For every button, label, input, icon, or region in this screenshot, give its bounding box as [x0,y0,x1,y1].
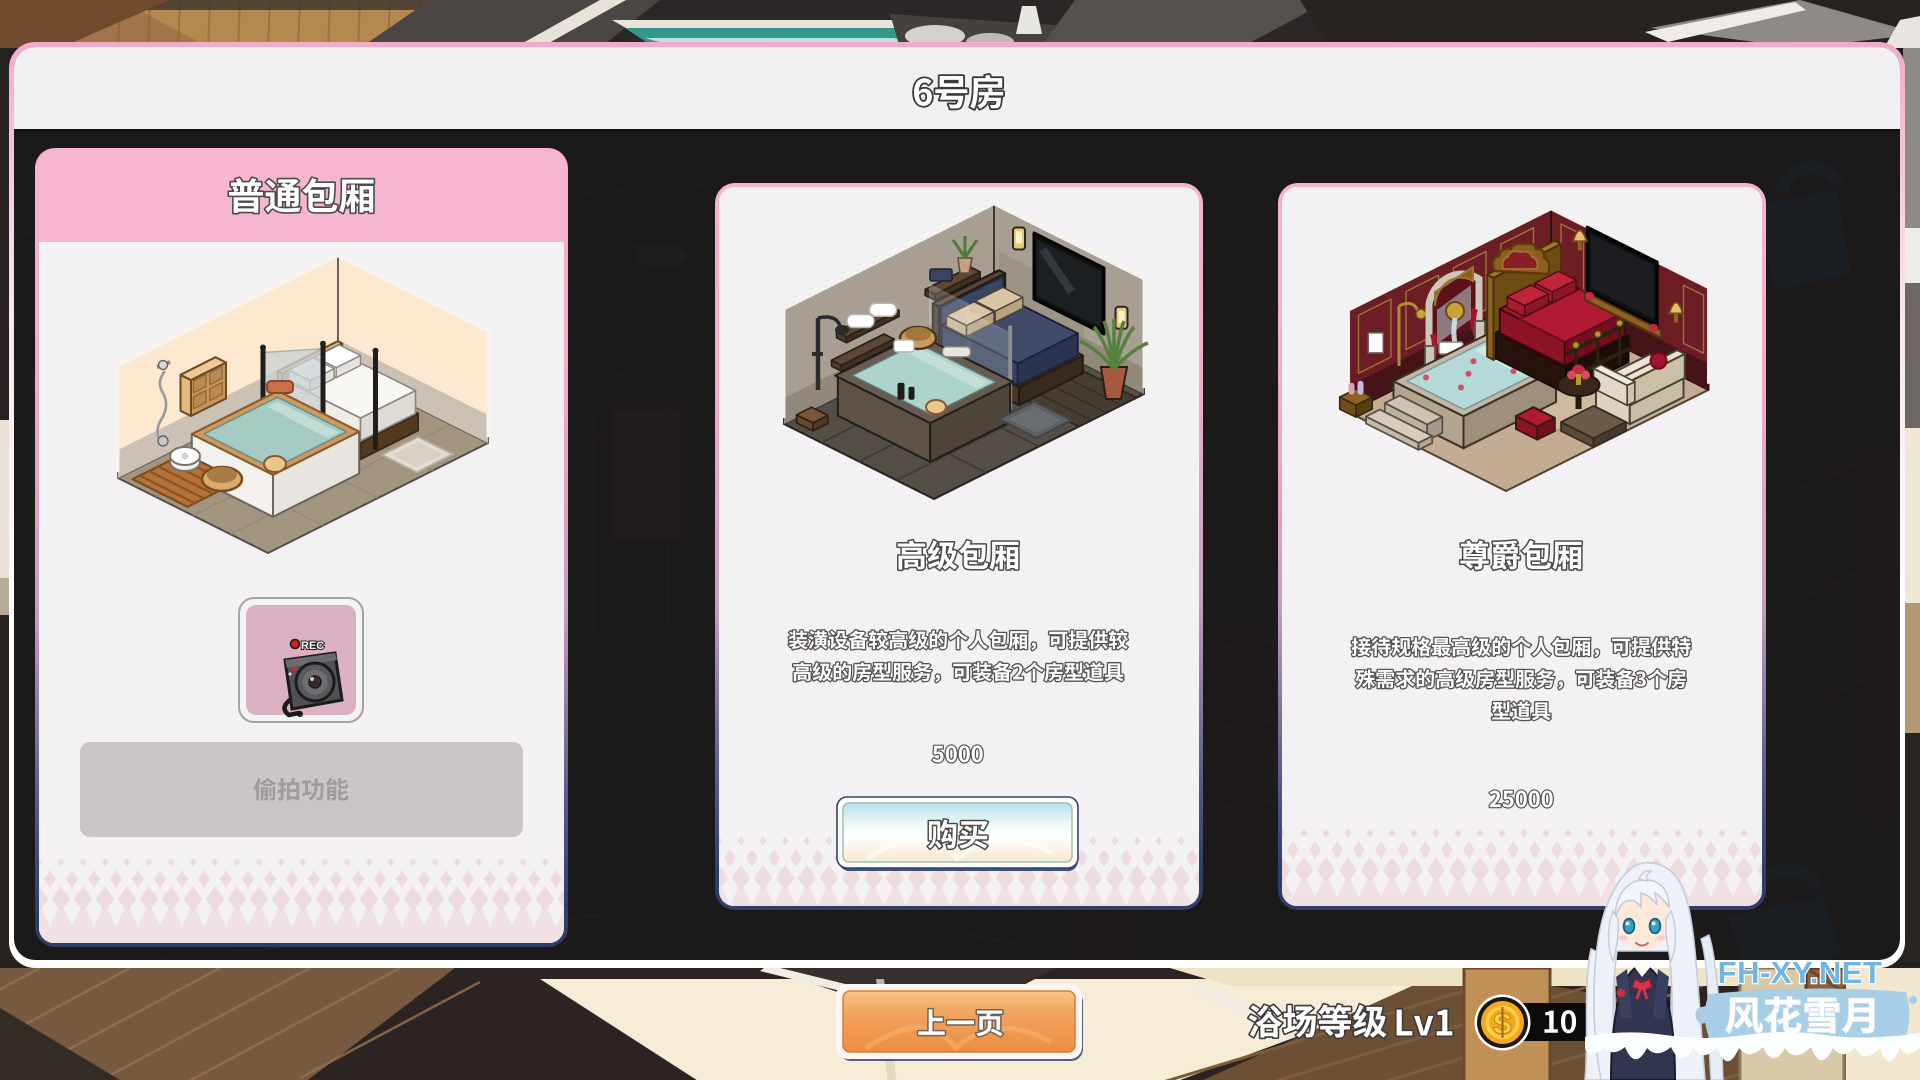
svg-text:REC: REC [301,640,324,652]
